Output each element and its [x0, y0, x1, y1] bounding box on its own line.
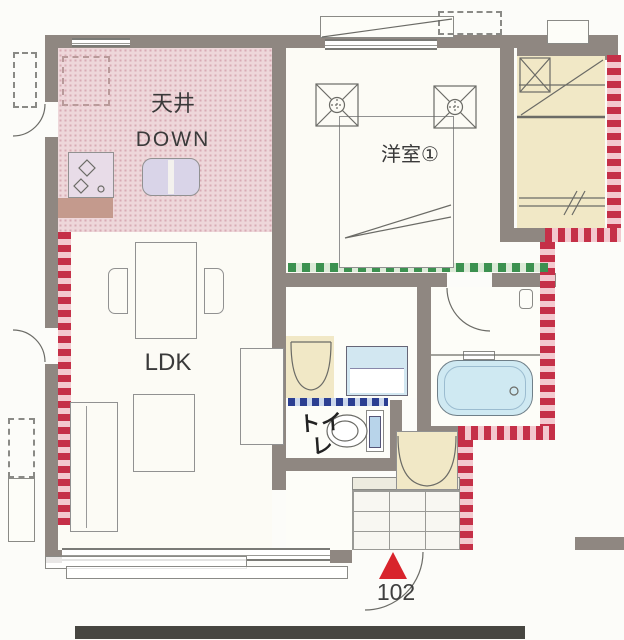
washbasin-counter: [350, 368, 404, 393]
lower-hall-floor: [286, 471, 352, 550]
kitchen-ceiling-label-line1: 天井: [120, 92, 226, 116]
sofa-seat-line: [86, 406, 87, 528]
ldk-side-door-opening: [45, 328, 58, 364]
shower-fixture: [519, 289, 533, 309]
hatch-stair-bottom: [545, 228, 621, 242]
toilet-tank-blue-panel: [369, 416, 381, 448]
bed: [339, 116, 454, 268]
hatch-bath-bottom: [458, 426, 555, 440]
hall-closet-floor: [286, 336, 334, 398]
kitchen-top-window: [72, 38, 130, 47]
floor-plan: 天井 DOWN 洋室① LDK トイレ 102: [0, 0, 624, 640]
unit-number-label: 102: [368, 580, 424, 605]
western-room-top-window: [325, 39, 437, 50]
outdoor-unit-dashed: [8, 418, 35, 478]
kitchen-service-door-arc: [13, 104, 45, 136]
kitchen-service-door-opening: [45, 102, 58, 137]
toilet-label: トイレ: [288, 410, 355, 461]
bath-sliding-door: [463, 351, 495, 360]
wall-top-right-thick: [517, 48, 618, 56]
eave-dashed-top-left: [13, 52, 37, 108]
wall-washroom-left: [417, 287, 431, 426]
outdoor-unit-box: [8, 478, 35, 542]
wall-stair-bottom: [500, 228, 545, 242]
wall-bottom-stub: [330, 550, 352, 563]
tv-board: [240, 348, 284, 445]
ldk-side-door-arc: [13, 330, 45, 362]
coffee-table: [133, 394, 195, 472]
kitchen-counter: [58, 198, 113, 218]
blue-dotted-boundary: [288, 398, 388, 406]
ldk-label: LDK: [133, 350, 203, 376]
wall-stair-left: [500, 48, 514, 228]
staircase-floor: [517, 55, 605, 228]
entrance-tile-floor: [352, 490, 460, 550]
refrigerator-space: [62, 56, 110, 106]
sofa: [70, 402, 118, 532]
hatch-stair-right: [607, 55, 621, 235]
dining-chair-left: [108, 268, 128, 314]
eave-with-slope: [320, 16, 454, 38]
wall-kitchen-divider: [272, 48, 286, 232]
hatch-entry-right: [458, 440, 473, 550]
eave-dashed-top-right: [438, 11, 502, 35]
stove: [68, 152, 114, 198]
shoe-cabinet: [396, 431, 458, 490]
dining-chair-right: [204, 268, 224, 314]
window-sill-b: [66, 566, 348, 579]
wall-below-western-room-a: [286, 273, 447, 287]
dining-table: [135, 242, 197, 339]
bathtub-inner: [444, 366, 526, 410]
kitchen-sink-divider: [168, 160, 174, 194]
scan-edge-bar: [75, 626, 525, 639]
stair-top-window-box: [547, 20, 589, 44]
wall-bottom-right: [575, 537, 624, 550]
entrance-marker-triangle: [379, 552, 407, 579]
kitchen-ceiling-label-line2: DOWN: [120, 128, 226, 151]
western-room-label: 洋室①: [360, 144, 460, 166]
